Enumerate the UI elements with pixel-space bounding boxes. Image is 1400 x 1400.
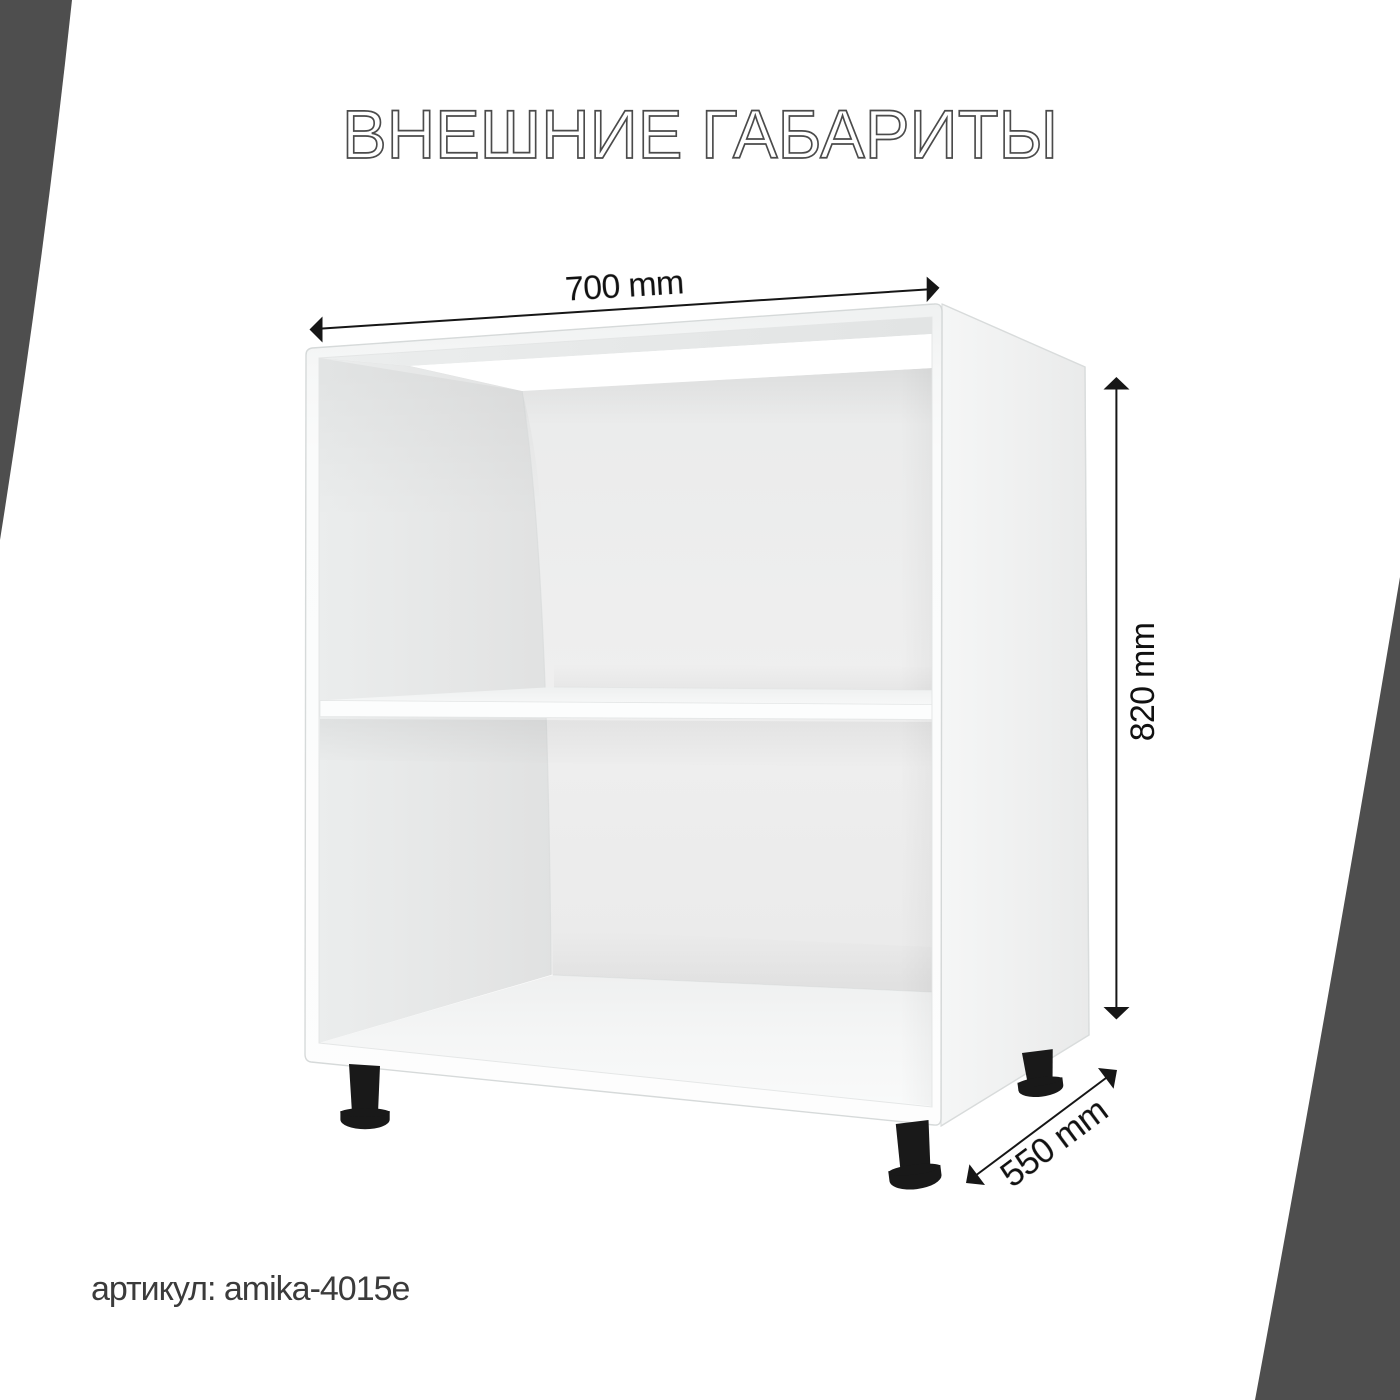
svg-text:артикул: amika-4015e: артикул: amika-4015e <box>91 1270 410 1308</box>
svg-text:820 mm: 820 mm <box>1124 623 1162 742</box>
svg-text:700 mm: 700 mm <box>564 263 685 308</box>
svg-text:ВНЕШНИЕ ГАБАРИТЫ: ВНЕШНИЕ ГАБАРИТЫ <box>342 96 1058 173</box>
